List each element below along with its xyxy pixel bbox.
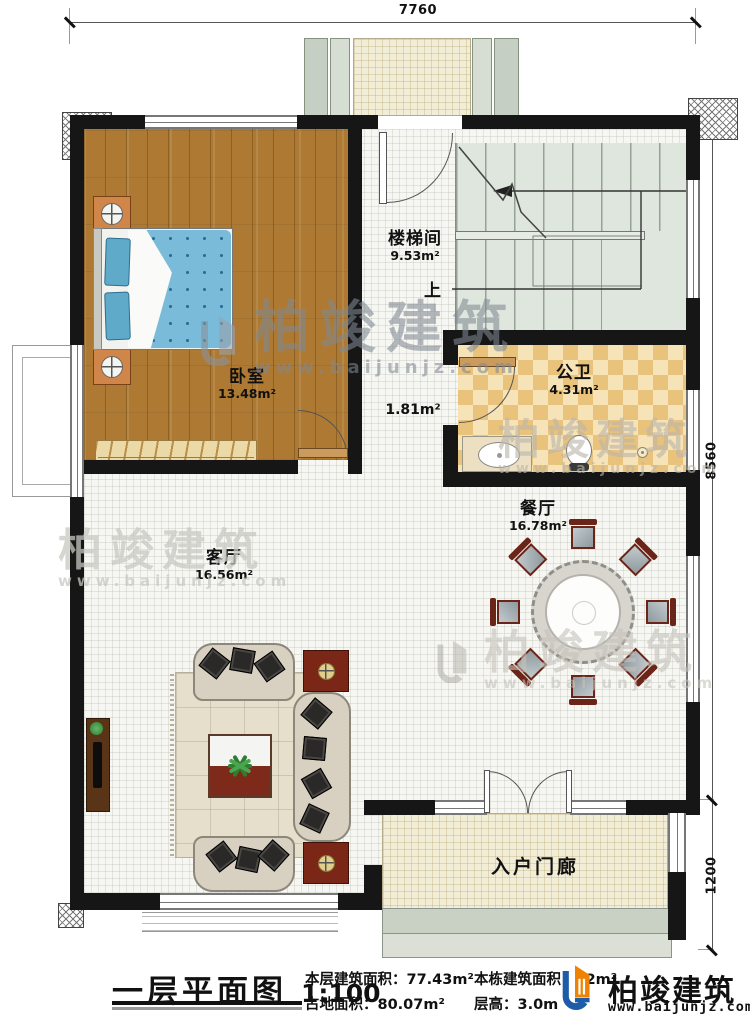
sidelight-window bbox=[570, 800, 626, 815]
sofa-pillow bbox=[235, 846, 262, 873]
right-dimension-line bbox=[712, 120, 713, 950]
dining-chair bbox=[644, 598, 676, 626]
terrace-door-leaf bbox=[379, 132, 387, 204]
stair-upper-flight bbox=[455, 143, 687, 233]
dining-chair bbox=[490, 598, 522, 626]
window bbox=[668, 813, 686, 872]
window bbox=[145, 115, 297, 129]
terrace-wall bbox=[472, 38, 492, 116]
entry-door-leaf bbox=[484, 770, 490, 813]
wall bbox=[443, 345, 458, 365]
side-table bbox=[303, 650, 349, 692]
sofa-pillow bbox=[302, 736, 327, 761]
extension-line bbox=[695, 8, 696, 44]
wall bbox=[348, 129, 362, 474]
plant-icon bbox=[90, 722, 103, 735]
entry-door-leaf bbox=[566, 770, 572, 813]
plant-icon bbox=[227, 753, 253, 779]
toilet-icon bbox=[566, 435, 592, 466]
chair-seat bbox=[646, 600, 669, 624]
bedroom-door-leaf bbox=[298, 448, 348, 458]
wall bbox=[70, 497, 84, 893]
pillow bbox=[104, 292, 131, 341]
wall bbox=[70, 893, 160, 910]
window bbox=[686, 180, 700, 298]
sink-icon bbox=[478, 442, 520, 468]
stair-landing-bar bbox=[455, 231, 645, 240]
room-label-bathroom: 公卫4.31m² bbox=[514, 364, 634, 396]
stair-edge bbox=[645, 231, 686, 240]
wall bbox=[462, 115, 700, 129]
wall bbox=[84, 460, 298, 474]
brand-url: www.baijunjz.com bbox=[608, 999, 750, 1015]
toilet-base bbox=[569, 463, 589, 471]
terrace-wall bbox=[330, 38, 350, 116]
extension-line bbox=[69, 8, 70, 44]
tv-icon bbox=[93, 742, 102, 788]
rug-fringe bbox=[170, 674, 174, 856]
sofa-pillow bbox=[229, 647, 256, 674]
dining-table-center bbox=[572, 601, 596, 625]
top-dimension-value: 7760 bbox=[388, 3, 448, 18]
floor-plan-page: 7760 8560 1200 bbox=[0, 0, 750, 1020]
wall bbox=[626, 800, 700, 815]
side-table bbox=[303, 842, 349, 884]
stair-lower-flight bbox=[455, 240, 603, 330]
room-label-hallway: 1.81m² bbox=[363, 402, 463, 418]
top-dimension-line bbox=[70, 22, 696, 23]
chair-back bbox=[490, 598, 496, 626]
outdoor-steps bbox=[142, 912, 338, 932]
pillow bbox=[104, 238, 131, 287]
wall bbox=[443, 472, 700, 487]
wall bbox=[364, 865, 382, 910]
wall bbox=[668, 872, 686, 940]
window bbox=[686, 390, 700, 470]
porch-step bbox=[382, 933, 672, 958]
dining-chair bbox=[569, 673, 597, 705]
nightstand bbox=[93, 348, 131, 385]
title-rule bbox=[112, 1001, 302, 1005]
room-label-bedroom: 卧室13.48m² bbox=[187, 368, 307, 400]
land-area-line: 占地面积：80.07m² bbox=[305, 993, 445, 1014]
bathroom-door-leaf bbox=[459, 357, 516, 367]
bay-window-inner bbox=[22, 357, 72, 485]
floor-area-line: 本层建筑面积：77.43m² bbox=[305, 968, 474, 989]
lamp-icon bbox=[318, 855, 335, 872]
nightstand bbox=[93, 196, 131, 232]
room-label-living: 客厅16.56m² bbox=[164, 549, 284, 581]
chair-back bbox=[569, 699, 597, 705]
room-label-stairwell: 楼梯间9.53m² bbox=[355, 230, 475, 262]
floor-drain-icon bbox=[637, 447, 648, 458]
title-block: 一层平面图 1:100 本层建筑面积：77.43m² 占地面积：80.07m² … bbox=[0, 960, 750, 1020]
room-label-dining: 餐厅16.78m² bbox=[478, 500, 598, 532]
wall bbox=[364, 800, 435, 815]
window bbox=[70, 345, 84, 497]
wall bbox=[297, 115, 378, 129]
wall bbox=[443, 330, 700, 345]
terrace-wall bbox=[494, 38, 519, 116]
porch-step bbox=[382, 908, 672, 934]
chair-seat bbox=[571, 675, 595, 698]
wall bbox=[443, 425, 458, 472]
table-lamp-icon bbox=[101, 356, 123, 378]
table-lamp-icon bbox=[101, 203, 123, 225]
title-rule bbox=[112, 1007, 302, 1010]
window bbox=[160, 893, 338, 910]
brand-logo-icon bbox=[545, 962, 605, 1018]
right-dimension-lower: 1200 bbox=[694, 845, 730, 905]
bed-headboard bbox=[93, 228, 102, 350]
upper-terrace-floor bbox=[353, 38, 471, 116]
sidelight-window bbox=[435, 800, 487, 815]
terrace-wall bbox=[304, 38, 328, 116]
wall bbox=[686, 115, 700, 180]
chair-seat bbox=[497, 600, 520, 624]
wall bbox=[70, 115, 145, 129]
stair-landing bbox=[602, 240, 686, 330]
wall bbox=[70, 129, 84, 345]
lamp-icon bbox=[318, 663, 335, 680]
window bbox=[686, 556, 700, 702]
room-label-porch: 入户门廊 bbox=[445, 852, 625, 879]
chair-back bbox=[670, 598, 676, 626]
wall bbox=[686, 702, 700, 800]
stair-up-label: 上 bbox=[424, 276, 450, 301]
